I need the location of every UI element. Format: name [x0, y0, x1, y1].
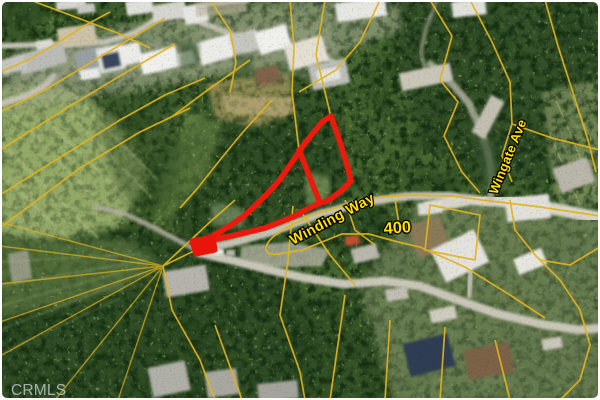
svg-text:CRMLS: CRMLS [11, 382, 66, 399]
svg-text:400: 400 [383, 218, 412, 238]
